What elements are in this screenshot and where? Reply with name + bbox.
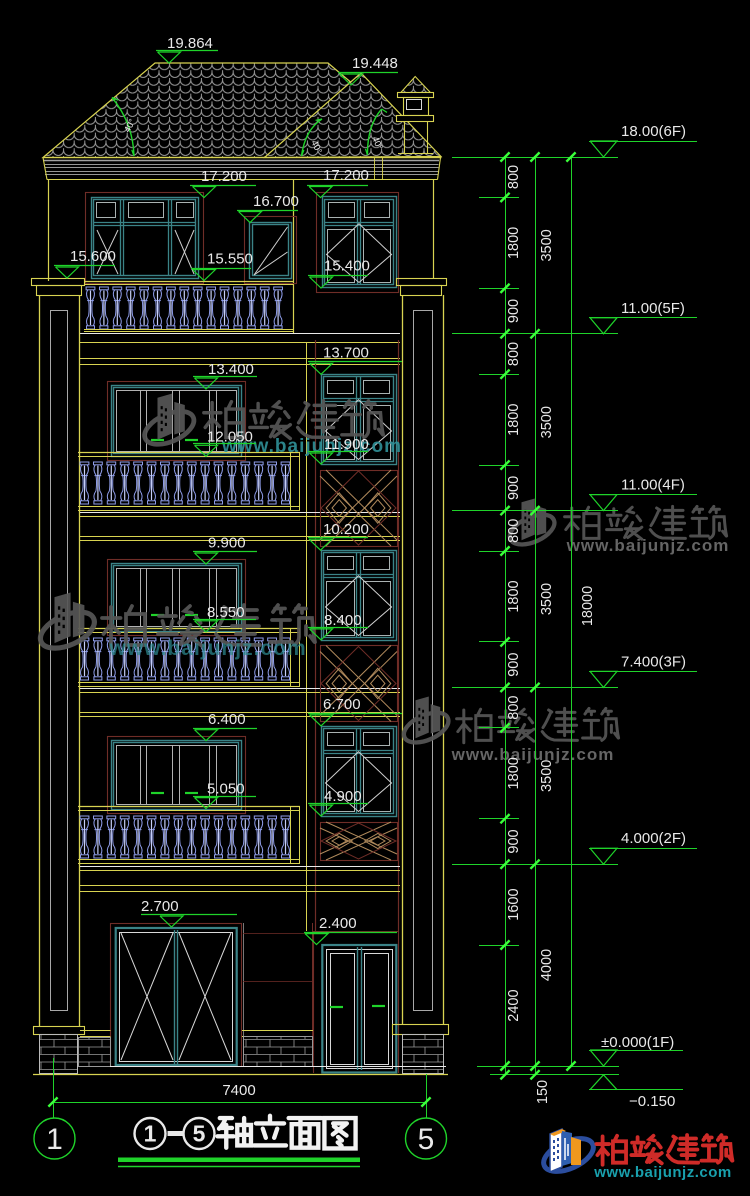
svg-text:4.900: 4.900: [324, 788, 362, 805]
svg-text:6.400: 6.400: [208, 711, 246, 728]
svg-text:12.050: 12.050: [207, 429, 253, 446]
svg-text:5: 5: [418, 1123, 435, 1156]
svg-text:3500: 3500: [539, 229, 555, 261]
svg-text:1: 1: [46, 1123, 63, 1156]
svg-text:9.900: 9.900: [208, 535, 246, 552]
svg-text:2.700: 2.700: [141, 898, 179, 915]
svg-text:1800: 1800: [506, 757, 522, 789]
svg-text:www.baijunjz.com: www.baijunjz.com: [566, 536, 730, 555]
svg-text:16.700: 16.700: [253, 193, 299, 210]
svg-text:15.400: 15.400: [324, 258, 370, 275]
svg-text:900: 900: [506, 476, 522, 500]
svg-text:11.900: 11.900: [324, 436, 369, 453]
svg-text:800: 800: [506, 695, 522, 719]
svg-text:17.200: 17.200: [323, 167, 369, 184]
svg-text:800: 800: [506, 165, 522, 189]
svg-text:4.000(2F): 4.000(2F): [621, 830, 686, 847]
svg-text:18000: 18000: [580, 586, 596, 626]
svg-text:8.550: 8.550: [207, 604, 245, 621]
svg-text:800: 800: [506, 342, 522, 366]
svg-text:17.200: 17.200: [201, 168, 247, 185]
svg-text:11.00(5F): 11.00(5F): [621, 300, 685, 317]
svg-text:15.550: 15.550: [207, 251, 253, 268]
svg-text:2400: 2400: [506, 989, 522, 1021]
svg-text:5.050: 5.050: [207, 781, 245, 798]
svg-text:www.baijunjz.com: www.baijunjz.com: [108, 637, 306, 660]
svg-text:10.200: 10.200: [323, 521, 369, 538]
svg-text:13.400: 13.400: [208, 361, 254, 378]
svg-text:19.448: 19.448: [352, 55, 398, 72]
svg-text:900: 900: [506, 653, 522, 677]
svg-text:800: 800: [506, 519, 522, 543]
svg-text:4000: 4000: [539, 949, 555, 981]
svg-text:3500: 3500: [539, 760, 555, 792]
svg-text:1800: 1800: [506, 404, 522, 436]
svg-text:7.400(3F): 7.400(3F): [621, 653, 686, 670]
svg-text:15.600: 15.600: [70, 248, 116, 265]
svg-text:5: 5: [193, 1121, 206, 1147]
svg-text:13.700: 13.700: [323, 345, 369, 362]
svg-text:3500: 3500: [539, 406, 555, 438]
svg-text:7400: 7400: [222, 1082, 255, 1099]
svg-text:900: 900: [506, 829, 522, 853]
svg-text:18.00(6F): 18.00(6F): [621, 123, 686, 140]
svg-text:11.00(4F): 11.00(4F): [621, 477, 685, 494]
svg-text:6.700: 6.700: [323, 696, 361, 713]
svg-text:1: 1: [144, 1121, 157, 1147]
svg-text:www.baijunjz.com: www.baijunjz.com: [593, 1164, 731, 1181]
svg-text:−0.150: −0.150: [629, 1093, 675, 1110]
svg-text:1800: 1800: [506, 580, 522, 612]
svg-text:150: 150: [535, 1080, 551, 1104]
svg-text:1800: 1800: [506, 227, 522, 259]
svg-text:www.baijunjz.com: www.baijunjz.com: [451, 745, 615, 764]
svg-text:19.864: 19.864: [167, 35, 213, 52]
svg-text:2.400: 2.400: [319, 915, 357, 932]
svg-text:3500: 3500: [539, 583, 555, 615]
svg-text:900: 900: [506, 299, 522, 323]
svg-text:1600: 1600: [506, 888, 522, 920]
svg-text:±0.000(1F): ±0.000(1F): [601, 1034, 674, 1051]
svg-text:8.400: 8.400: [324, 612, 362, 629]
